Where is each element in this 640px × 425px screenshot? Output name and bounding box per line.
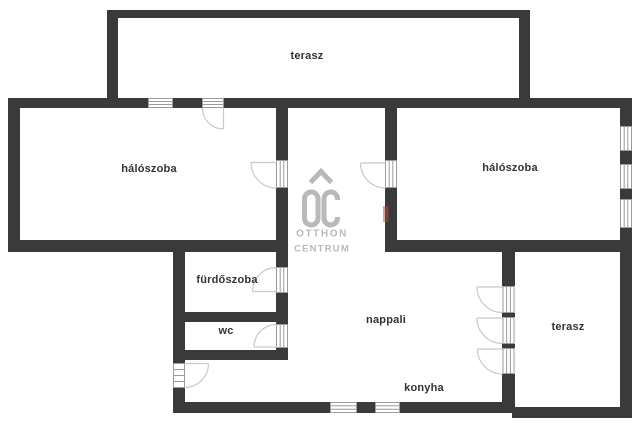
door-icon bbox=[503, 349, 514, 374]
room-label-konyha: konyha bbox=[404, 382, 444, 394]
room-label-terasz-right: terasz bbox=[552, 321, 585, 333]
room-label-furdoszoba: fürdőszoba bbox=[196, 274, 257, 286]
watermark-accent-mark bbox=[383, 206, 389, 222]
door-icon bbox=[503, 287, 514, 313]
room-label-haloszoba-right: hálószoba bbox=[482, 162, 538, 174]
floor-plan: terasz hálószoba hálószoba fürdőszoba wc… bbox=[0, 0, 640, 425]
floor-plan-drawing bbox=[0, 0, 640, 425]
door-icon bbox=[203, 99, 224, 108]
door-icon bbox=[277, 268, 288, 293]
room-label-wc: wc bbox=[218, 325, 233, 337]
door-icon bbox=[277, 325, 288, 348]
window-icon bbox=[149, 99, 173, 108]
window-icon bbox=[621, 200, 632, 228]
room-label-haloszoba-left: hálószoba bbox=[121, 163, 177, 175]
door-icon bbox=[277, 161, 288, 188]
window-icon bbox=[621, 127, 632, 151]
room-label-nappali: nappali bbox=[366, 314, 406, 326]
room-label-terasz-top: terasz bbox=[291, 50, 324, 62]
watermark-otthon-text: OTTHON bbox=[296, 229, 348, 240]
door-icon bbox=[503, 318, 514, 344]
window-icon bbox=[376, 403, 400, 413]
door-icon bbox=[174, 364, 185, 388]
watermark-centrum-text: CENTRUM bbox=[294, 244, 350, 255]
window-icon bbox=[331, 403, 357, 413]
door-icon bbox=[386, 161, 397, 188]
window-icon bbox=[621, 165, 632, 189]
otthon-centrum-logo-icon bbox=[305, 172, 343, 226]
